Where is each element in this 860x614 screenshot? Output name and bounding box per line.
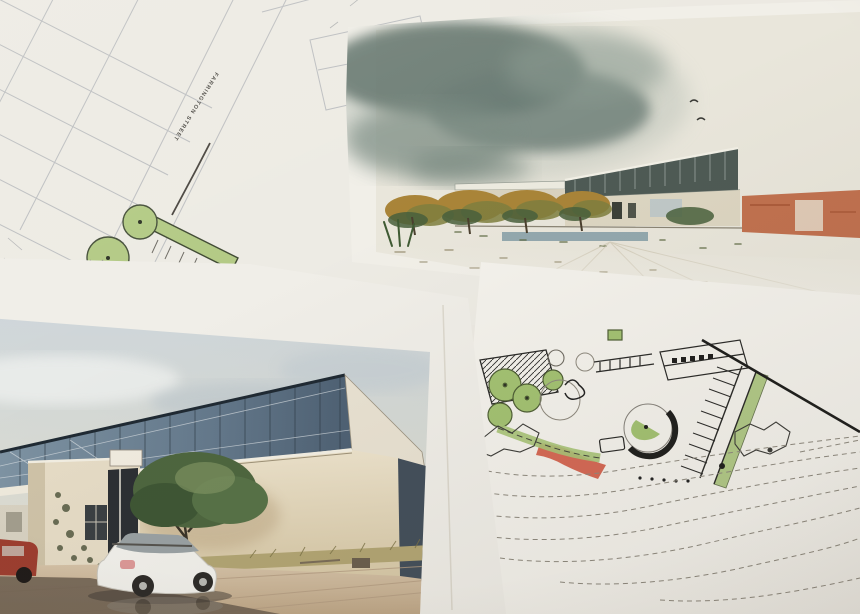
survey-faint-marks	[2, 0, 360, 292]
photo-of-architectural-drawings: FARRINGTON STREET	[0, 0, 860, 614]
debris	[352, 558, 370, 568]
dark-end-wall	[397, 458, 426, 582]
roof-monitor	[110, 450, 142, 466]
sketch-parking-ladder	[681, 340, 860, 488]
sketch-green-areas	[488, 330, 622, 427]
survey-street-curb	[144, 143, 238, 270]
sketch-contour-lines	[450, 436, 860, 601]
car-marking	[120, 560, 135, 569]
paper-crease	[443, 305, 452, 610]
orange-wall	[742, 190, 860, 238]
photo-image	[0, 300, 440, 614]
door	[612, 202, 622, 219]
